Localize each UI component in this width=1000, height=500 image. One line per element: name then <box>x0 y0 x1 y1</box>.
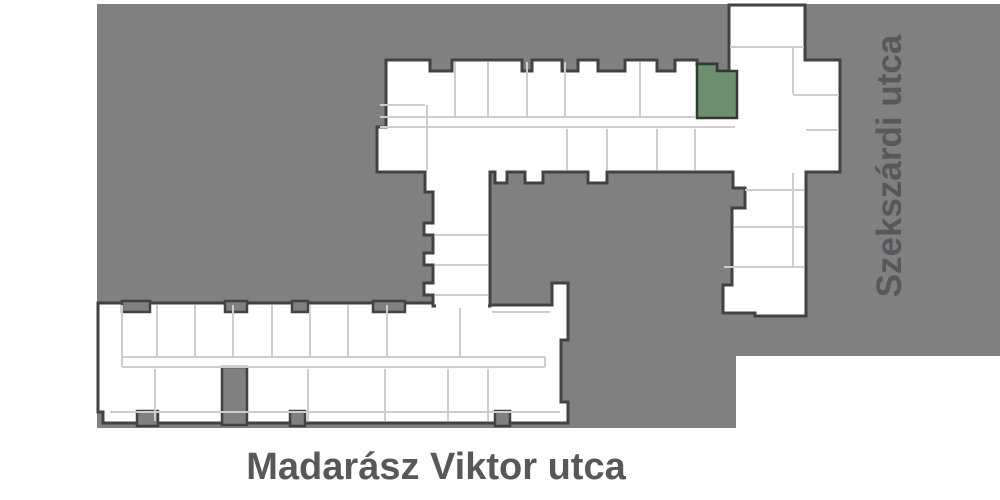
facade-notch <box>122 301 150 312</box>
street-label-szekszardi-utca: Szekszárdi utca <box>870 34 909 297</box>
facade-notch <box>290 411 305 426</box>
site-plan-page: Madarász Viktor utca Szekszárdi utca <box>0 0 1000 500</box>
facade-notch <box>373 301 405 312</box>
selected-unit[interactable] <box>697 64 737 118</box>
facade-notch <box>292 301 308 312</box>
building-south <box>98 283 568 423</box>
wing-junction <box>436 300 488 308</box>
facade-notch <box>495 411 510 426</box>
courtyard-slot <box>222 367 247 425</box>
site-plan-svg: Madarász Viktor utca Szekszárdi utca <box>0 0 1000 500</box>
facade-notch <box>225 301 247 312</box>
street-label-madarasz-viktor-utca: Madarász Viktor utca <box>246 446 626 488</box>
